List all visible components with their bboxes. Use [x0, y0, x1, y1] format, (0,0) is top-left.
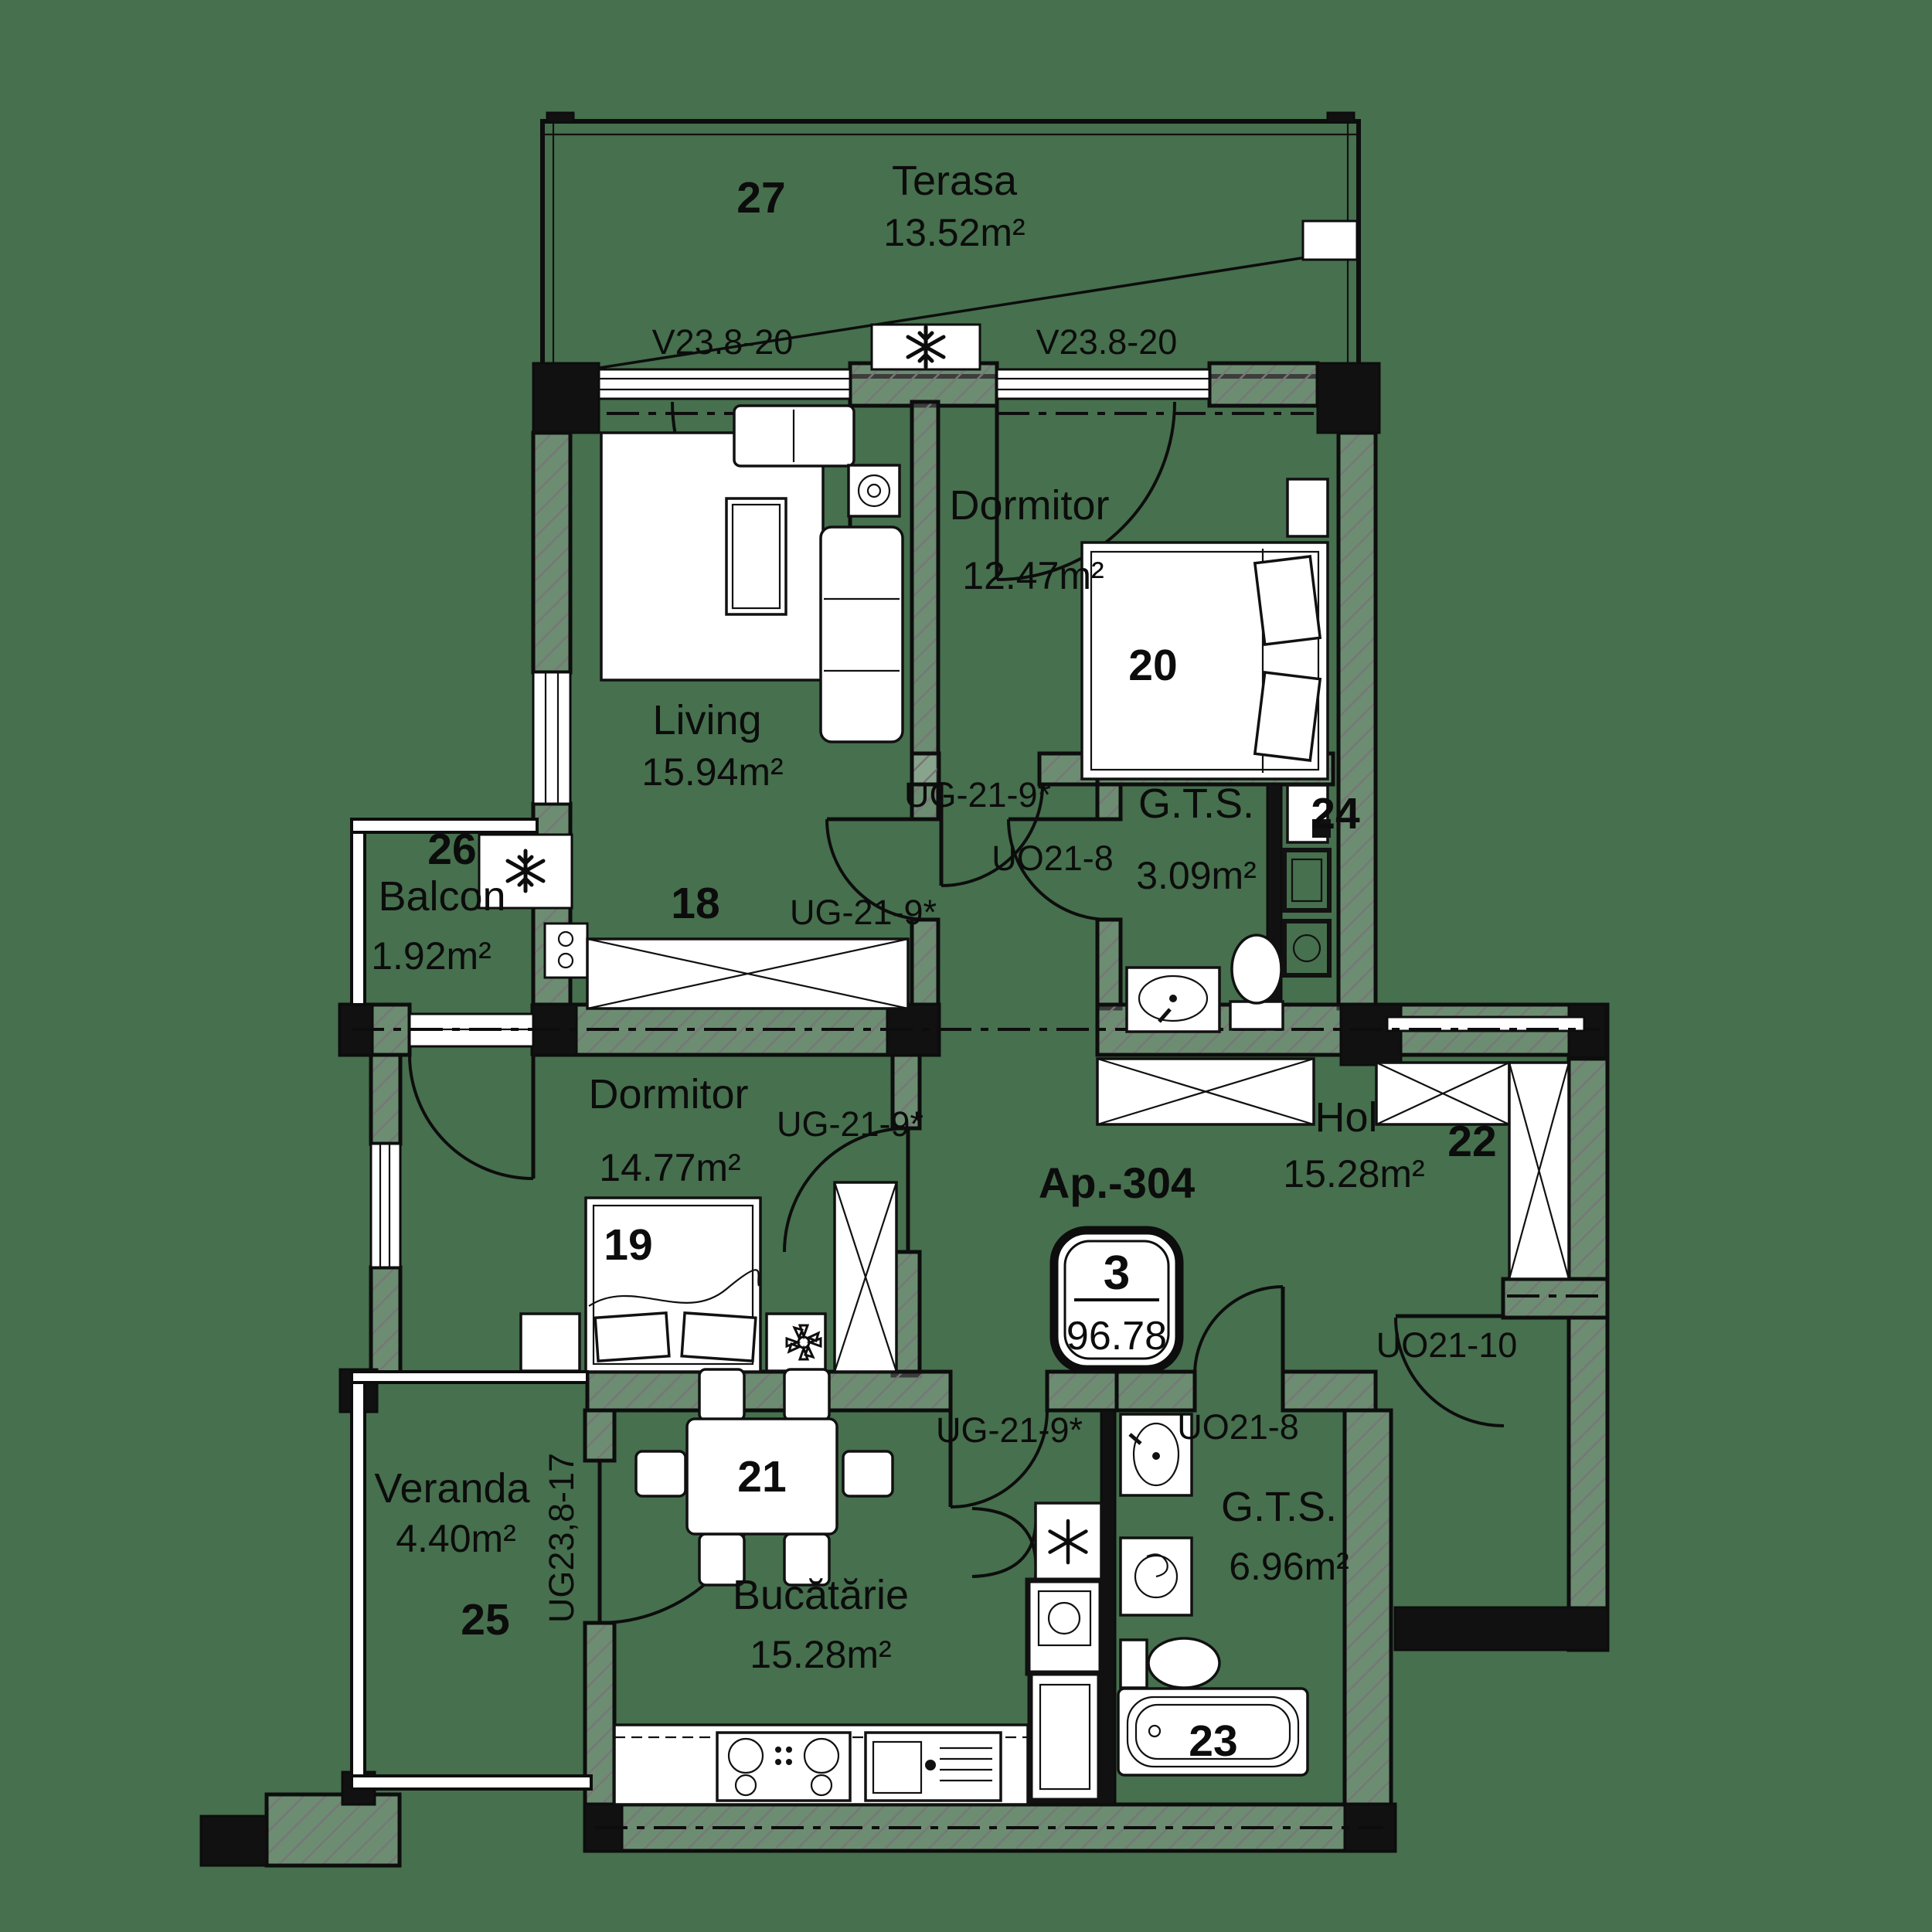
bathroom-sink — [1127, 968, 1219, 1032]
terrace-window-right — [997, 369, 1209, 399]
door-code-bucatarie: UG-21-9* — [936, 1410, 1083, 1450]
living-side-window — [533, 672, 570, 804]
room-num-gts2: 23 — [1189, 1716, 1237, 1766]
pillow — [1255, 556, 1320, 645]
door-code-dormitor2: UG-21-9* — [777, 1104, 923, 1144]
wardrobe — [1097, 1059, 1314, 1124]
wardrobe — [835, 1182, 896, 1372]
badge-total-area: 96.78 — [1066, 1314, 1167, 1359]
room-num-balcon: 26 — [427, 825, 476, 874]
side-table — [849, 465, 900, 516]
room-label-bucatarie: Bucătărie — [733, 1572, 909, 1618]
room-num-bucatarie: 21 — [737, 1452, 786, 1502]
floor-plan-page: 3 96.78 27 Terasa 13.52m² V23.8-20 V23.8… — [0, 0, 1932, 1932]
room-num-hol: 22 — [1447, 1117, 1496, 1166]
room-area-terasa: 13.52m² — [883, 211, 1025, 254]
room-area-balcon: 1.92m² — [371, 934, 492, 978]
door-code-entrance: UO21-10 — [1376, 1325, 1518, 1365]
living-wardrobe — [587, 939, 908, 1009]
room-area-dormitor1: 12.47m² — [962, 554, 1104, 597]
background — [0, 0, 1932, 1932]
sofa — [821, 527, 903, 742]
apartment-label: Ap.-304 — [1039, 1158, 1195, 1207]
room-num-terasa: 27 — [736, 173, 785, 223]
pillow — [1255, 672, 1320, 760]
room-num-veranda: 25 — [461, 1595, 509, 1645]
room-area-gts2: 6.96m² — [1229, 1545, 1349, 1588]
badge-unit-number: 3 — [1104, 1247, 1130, 1300]
room-area-veranda: 4.40m² — [396, 1517, 516, 1560]
room-label-veranda: Veranda — [374, 1465, 530, 1512]
nightstand — [1287, 479, 1328, 536]
room-num-dormitor2: 19 — [604, 1220, 652, 1270]
door-code-gts1: UO21-8 — [992, 838, 1114, 878]
washing-machine — [1121, 1538, 1192, 1615]
window-code-left: V23.8-20 — [652, 322, 794, 362]
room-num-living: 18 — [671, 879, 719, 928]
door-code-gts2: UO21-8 — [1177, 1407, 1299, 1447]
room-area-living: 15.94m² — [641, 750, 783, 794]
room-label-gts1: G.T.S. — [1138, 781, 1254, 827]
tall-unit — [1028, 1580, 1101, 1801]
room-label-gts2: G.T.S. — [1221, 1484, 1337, 1530]
nightstand — [521, 1314, 580, 1371]
room-label-dormitor1: Dormitor — [949, 482, 1109, 529]
dormitor2-side-window — [371, 1144, 400, 1267]
loveseat — [734, 406, 854, 466]
boiler-unit — [1036, 1503, 1101, 1580]
coffee-table — [726, 498, 786, 614]
room-area-dormitor2: 14.77m² — [599, 1146, 740, 1189]
rug — [601, 433, 823, 680]
wardrobe — [1509, 1063, 1569, 1279]
door-code-veranda: UG23,8-17 — [542, 1453, 581, 1623]
toilet — [1121, 1638, 1219, 1688]
window-code-right: V23.8-20 — [1036, 322, 1178, 362]
terrace-window-left — [599, 369, 850, 399]
stove — [717, 1733, 850, 1801]
door-code-dormitor1: UG-21-9* — [904, 775, 1051, 815]
room-label-balcon: Balcon — [378, 873, 505, 920]
toilet — [1230, 935, 1283, 1029]
terrace-drain-box — [1303, 221, 1357, 260]
floor-plan-canvas: 3 96.78 27 Terasa 13.52m² V23.8-20 V23.8… — [0, 0, 1932, 1932]
room-label-hol: Hol — [1315, 1094, 1377, 1141]
room-label-terasa: Terasa — [892, 158, 1018, 204]
room-area-bucatarie: 15.28m² — [750, 1633, 891, 1676]
room-area-gts1: 3.09m² — [1136, 854, 1257, 897]
pillow — [595, 1313, 669, 1361]
kitchen-sink — [866, 1733, 1001, 1801]
room-num-dormitor1: 20 — [1128, 641, 1177, 690]
room-label-dormitor2: Dormitor — [588, 1071, 748, 1117]
room-area-hol: 15.28m² — [1283, 1152, 1424, 1196]
door-code-living: UG-21-9* — [790, 893, 937, 932]
wardrobe — [1376, 1063, 1509, 1124]
pillow — [682, 1313, 756, 1361]
apartment-badge: 3 96.78 — [1054, 1230, 1179, 1369]
room-label-living: Living — [652, 697, 761, 743]
room-num-gts1: 24 — [1311, 789, 1360, 838]
